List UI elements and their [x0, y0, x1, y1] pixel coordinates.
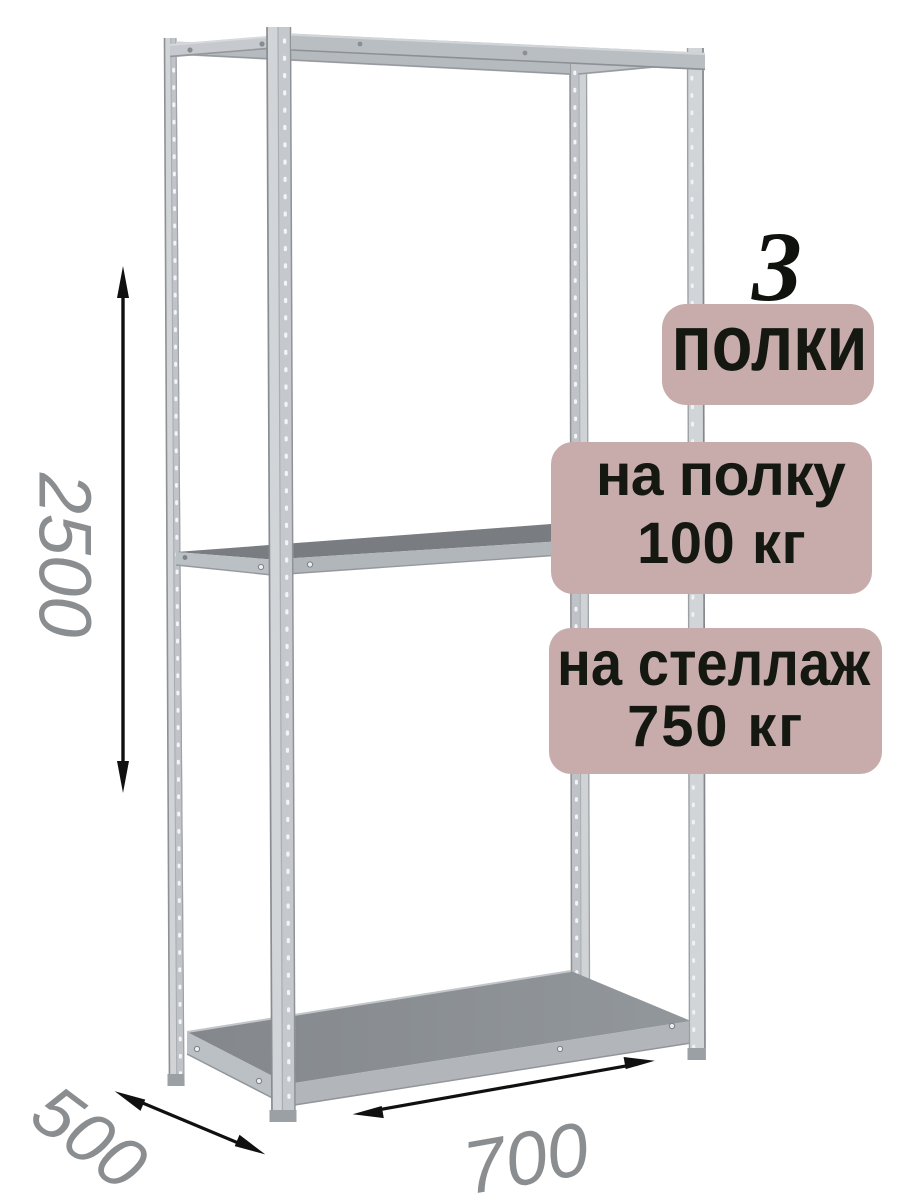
svg-text:на стеллаж: на стеллаж — [557, 629, 871, 699]
svg-text:750 кг: 750 кг — [627, 694, 804, 759]
svg-text:500: 500 — [17, 1070, 161, 1200]
svg-text:полки: полки — [672, 298, 868, 387]
svg-text:на полку: на полку — [596, 442, 846, 508]
svg-text:700: 700 — [457, 1106, 595, 1200]
svg-text:2500: 2500 — [24, 472, 107, 638]
svg-text:100 кг: 100 кг — [637, 511, 806, 576]
